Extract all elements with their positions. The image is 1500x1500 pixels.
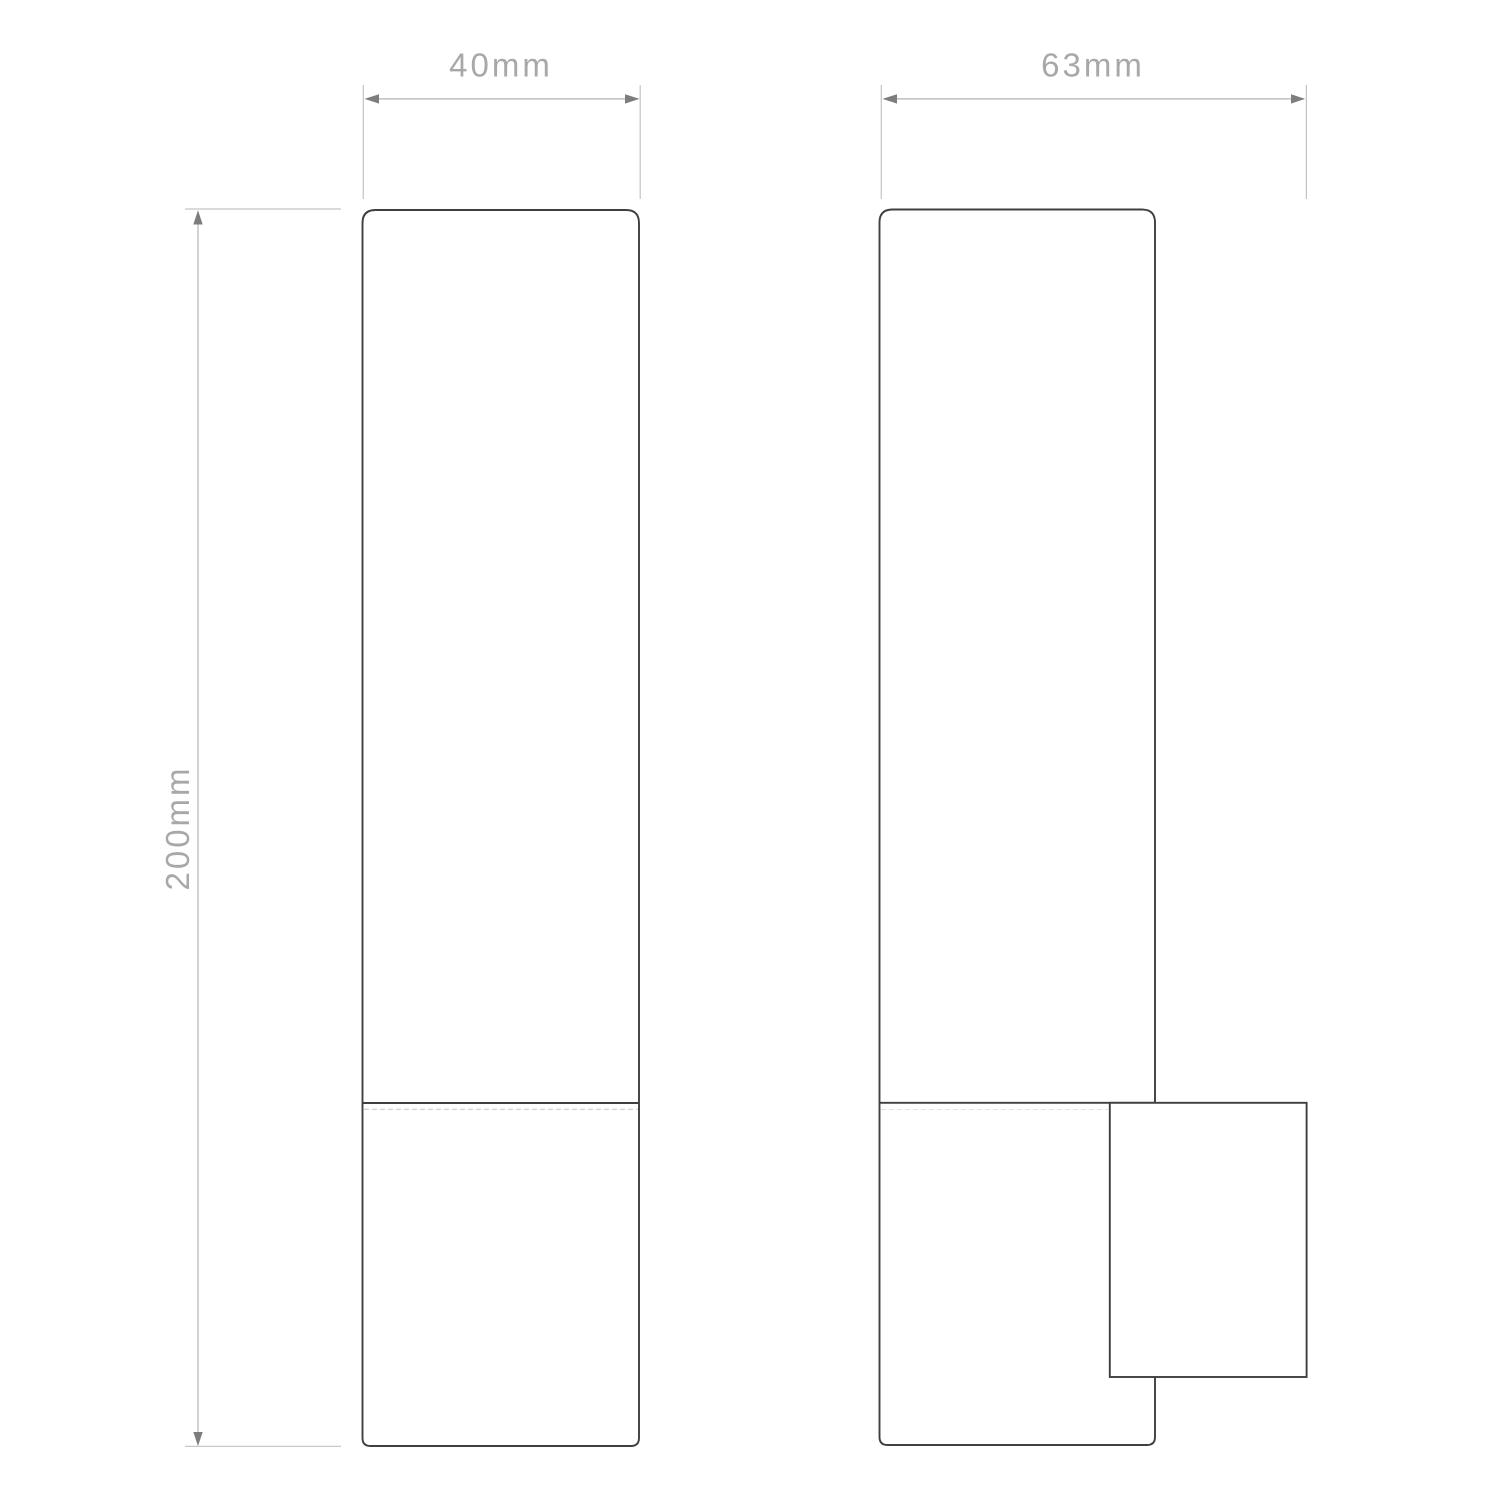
svg-text:63mm: 63mm [1041, 47, 1145, 84]
svg-text:40mm: 40mm [449, 47, 553, 84]
svg-text:200mm: 200mm [159, 765, 196, 890]
